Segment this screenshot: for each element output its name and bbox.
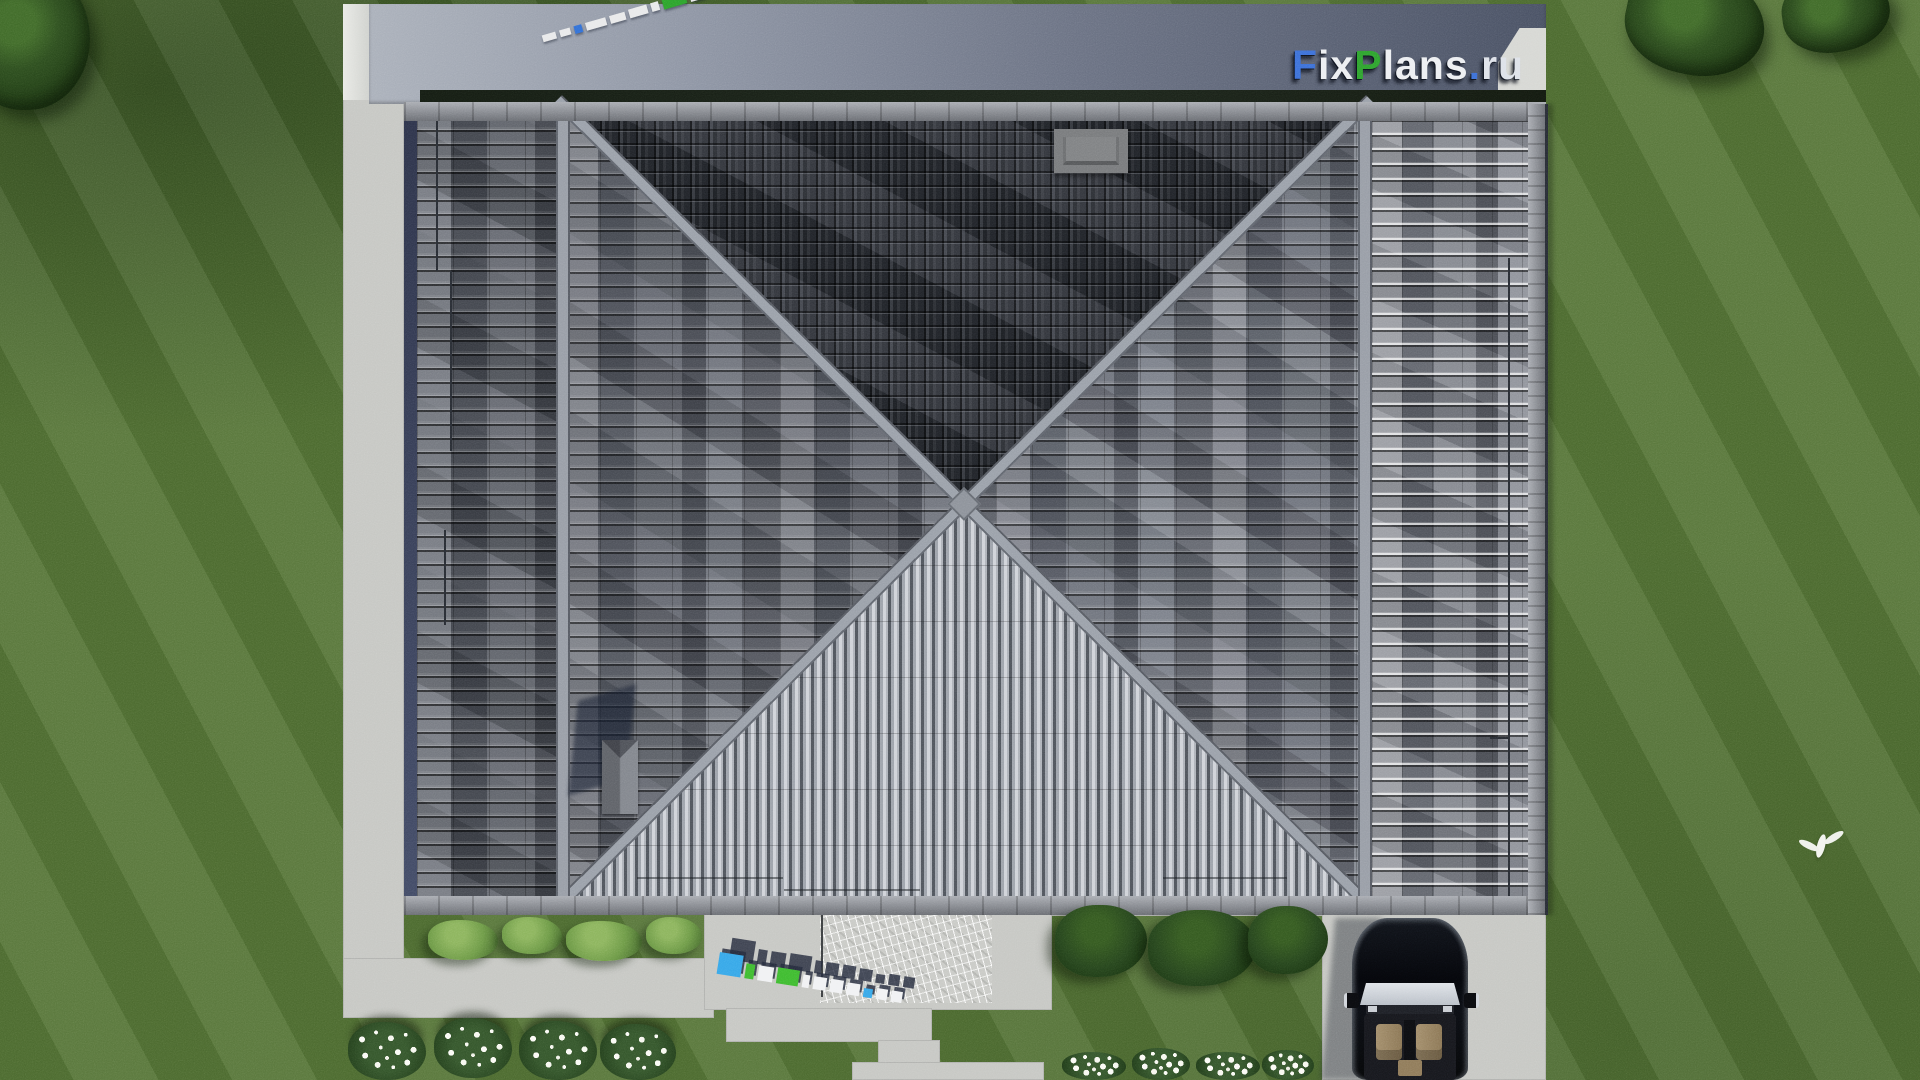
bird	[1796, 828, 1846, 866]
border-shrub-4	[1262, 1050, 1314, 1080]
border-shrub-2	[1132, 1048, 1190, 1080]
wm-block	[573, 24, 583, 34]
wm-block	[585, 17, 607, 30]
wm3-letter-P	[776, 967, 800, 986]
flowerbed-3	[519, 1021, 597, 1080]
wm3-letter-dot	[863, 988, 873, 998]
pavement-path-mid	[726, 1008, 932, 1042]
chimney-north-cap	[1063, 137, 1119, 165]
flowerbed-2	[434, 1018, 512, 1078]
car-console	[1404, 1020, 1415, 1064]
wm3-letter-a	[812, 976, 827, 991]
roof-eave-east	[1528, 104, 1546, 915]
roof-wing-east	[1372, 121, 1528, 900]
logo-part-p: P	[1354, 42, 1382, 88]
roof-edge-east-dark	[1545, 104, 1548, 915]
chimney-west	[602, 740, 638, 814]
roof-seam-east-tick	[1490, 737, 1508, 739]
wm3-letter-n	[829, 979, 844, 994]
wm-block	[628, 4, 649, 18]
bird-wing-left	[1798, 838, 1821, 854]
pavement-path-stem	[878, 1040, 940, 1064]
roof-ridge-east	[1358, 106, 1372, 912]
bush-light-4	[646, 917, 702, 954]
pavement-path-arm	[852, 1062, 1044, 1080]
car-seat-left	[1376, 1024, 1402, 1060]
logo-part-ix: ix	[1318, 42, 1354, 88]
roof-seam-2	[450, 271, 452, 451]
roof-seam-1	[436, 121, 438, 271]
chimney-north	[1054, 129, 1128, 173]
car-dashboard	[1366, 1005, 1454, 1014]
chimney-west-gable	[602, 740, 638, 758]
aerial-house-render: FixPlans.ru	[0, 0, 1920, 1080]
bush-light-3	[566, 921, 642, 961]
roof-south-mark-3	[1163, 877, 1287, 879]
car-windshield	[1360, 983, 1460, 1005]
wm3-letter-F	[717, 952, 744, 977]
logo-part-f: F	[1292, 42, 1318, 88]
fixplans-logo: FixPlans.ru	[1292, 42, 1524, 89]
bird-wing-right	[1823, 829, 1845, 847]
roof-wing-west	[417, 121, 560, 900]
roof-seam-east	[1508, 258, 1510, 898]
pavement-edge-highlight	[343, 4, 369, 100]
border-shrub-1	[1062, 1052, 1126, 1080]
wm-block	[650, 1, 660, 12]
logo-part-ru: ru	[1481, 42, 1524, 88]
wm3-letter-x	[757, 965, 774, 982]
bush-light-1	[428, 920, 498, 960]
roof-seam-3	[444, 530, 446, 625]
logo-part-dot: .	[1469, 42, 1481, 88]
wm3-letter-l	[801, 974, 810, 988]
wm3-letter-u	[890, 990, 903, 1003]
wm-block	[688, 0, 706, 1]
flowerbed-1	[348, 1022, 426, 1080]
roof-gutter-west	[404, 104, 417, 915]
flowerbed-4	[600, 1024, 676, 1080]
pavement-left-strip	[343, 4, 404, 1018]
car-mirror-right	[1464, 993, 1479, 1008]
wm3-letter-s	[846, 982, 861, 996]
car-dash-vent-left	[1368, 1006, 1377, 1012]
car-mirror-left	[1344, 993, 1359, 1008]
car	[1328, 912, 1548, 1080]
bush-light-2	[502, 917, 562, 954]
car-dash-vent-right	[1443, 1006, 1452, 1012]
wm3-letter-i	[744, 963, 755, 979]
logo-part-lans: lans	[1383, 42, 1469, 88]
roof-south-mark-1	[637, 877, 783, 879]
car-rear-seat	[1398, 1060, 1422, 1076]
roof-south-mark-2	[784, 889, 920, 891]
car-seat-right	[1416, 1024, 1442, 1060]
wm-block	[609, 11, 627, 23]
pavement-walkway-south	[343, 958, 714, 1018]
wm3-letter-r	[876, 988, 889, 1001]
wm-block	[542, 32, 557, 43]
wm-block	[559, 27, 572, 37]
border-shrub-3	[1196, 1052, 1260, 1080]
roof-eave-north	[404, 102, 1546, 121]
